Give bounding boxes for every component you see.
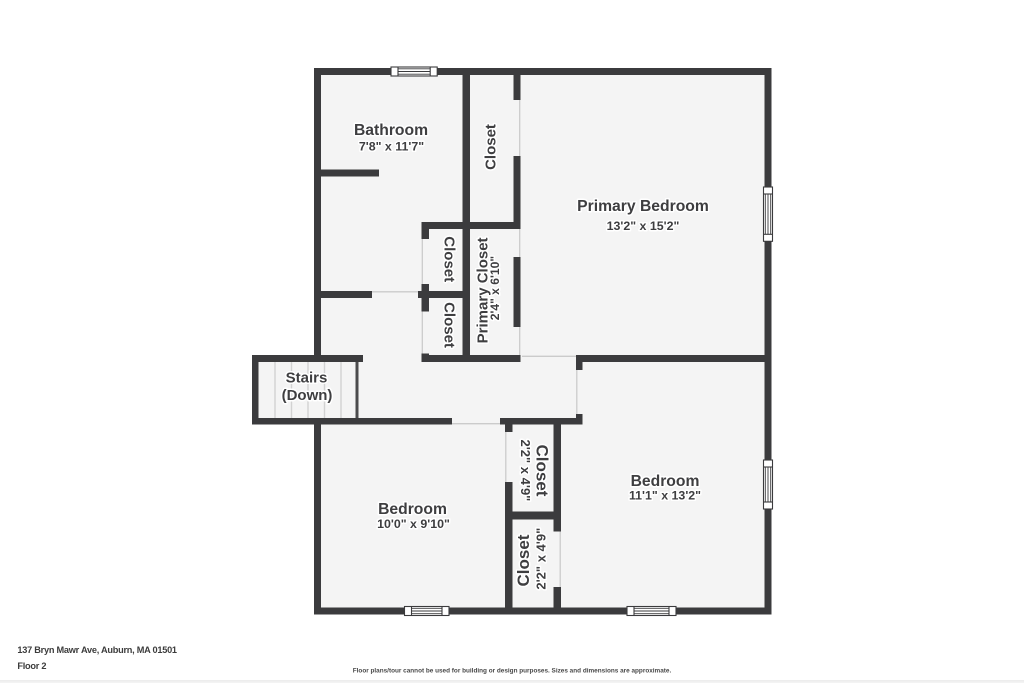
svg-text:2'2" x 4'9": 2'2" x 4'9": [518, 439, 533, 501]
svg-text:(Down): (Down): [282, 387, 333, 404]
svg-text:137 Bryn Mawr Ave, Auburn, MA: 137 Bryn Mawr Ave, Auburn, MA 01501: [17, 645, 177, 655]
svg-text:11'1" x 13'2": 11'1" x 13'2": [629, 489, 701, 503]
svg-text:10'0" x 9'10": 10'0" x 9'10": [377, 517, 450, 531]
svg-text:7'8" x 11'7": 7'8" x 11'7": [359, 140, 424, 154]
svg-text:Closet: Closet: [441, 236, 458, 282]
svg-text:Bedroom: Bedroom: [631, 473, 700, 490]
svg-text:Bathroom: Bathroom: [354, 122, 428, 139]
svg-text:Closet: Closet: [483, 124, 500, 170]
svg-text:Closet: Closet: [441, 302, 458, 348]
svg-text:Closet: Closet: [514, 534, 533, 586]
svg-text:2'2" x 4'9": 2'2" x 4'9": [534, 528, 549, 590]
svg-text:Closet: Closet: [532, 445, 551, 497]
svg-text:Bedroom: Bedroom: [378, 501, 447, 518]
svg-text:Stairs: Stairs: [286, 370, 328, 387]
svg-text:Primary Bedroom: Primary Bedroom: [577, 198, 709, 215]
svg-text:13'2" x 15'2": 13'2" x 15'2": [607, 219, 680, 233]
svg-text:Floor plans/tour cannot be use: Floor plans/tour cannot be used for buil…: [353, 667, 672, 674]
svg-text:Floor 2: Floor 2: [17, 661, 46, 671]
svg-text:2'4" x 6'10": 2'4" x 6'10": [488, 256, 502, 320]
